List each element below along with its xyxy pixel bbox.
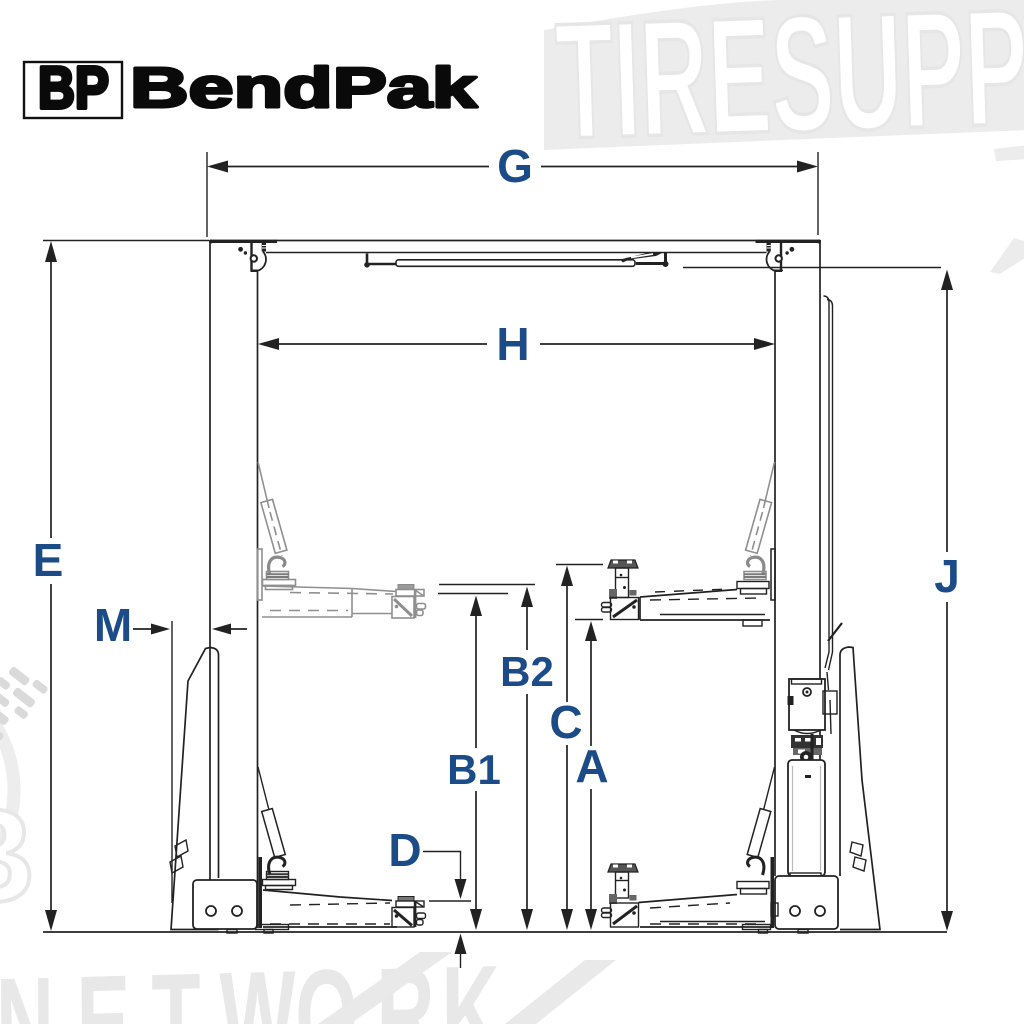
svg-text:E: E bbox=[33, 534, 64, 586]
svg-text:BendPak: BendPak bbox=[130, 56, 477, 120]
svg-text:J: J bbox=[934, 550, 960, 602]
svg-text:B: B bbox=[0, 780, 36, 931]
svg-text:D: D bbox=[388, 824, 421, 876]
svg-text:A: A bbox=[575, 740, 608, 792]
svg-text:B1: B1 bbox=[447, 746, 501, 793]
svg-text:M: M bbox=[94, 599, 132, 651]
svg-text:H: H bbox=[496, 318, 529, 370]
svg-text:G: G bbox=[497, 140, 533, 192]
svg-text:BP: BP bbox=[38, 55, 109, 121]
svg-text:TIRESUPP: TIRESUPP bbox=[553, 0, 1024, 174]
svg-text:B2: B2 bbox=[500, 648, 554, 695]
